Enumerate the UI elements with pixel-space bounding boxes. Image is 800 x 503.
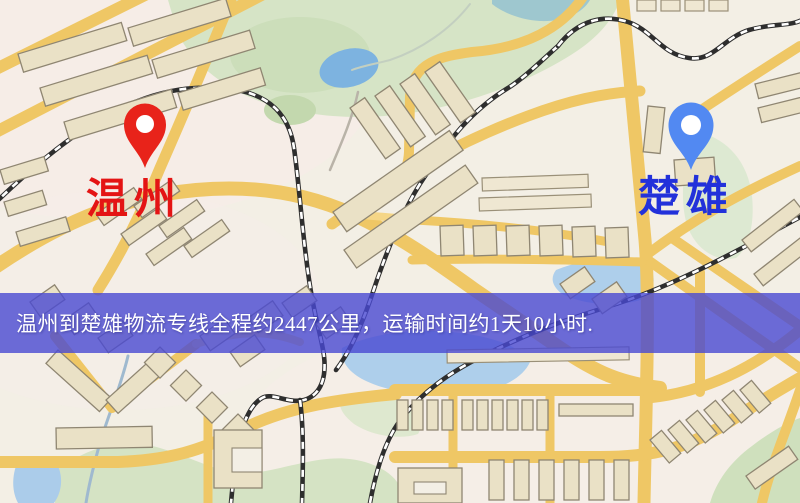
origin-label: 温州 (86, 179, 182, 221)
map-image[interactable] (0, 0, 800, 503)
map-view: 温州 楚雄 温州到楚雄物流专线全程约2447公里，运输时间约1天10小时. (0, 0, 800, 503)
route-info-banner: 温州到楚雄物流专线全程约2447公里，运输时间约1天10小时. (0, 293, 800, 353)
route-info-text: 温州到楚雄物流专线全程约2447公里，运输时间约1天10小时. (0, 308, 593, 338)
destination-label: 楚雄 (638, 177, 734, 219)
